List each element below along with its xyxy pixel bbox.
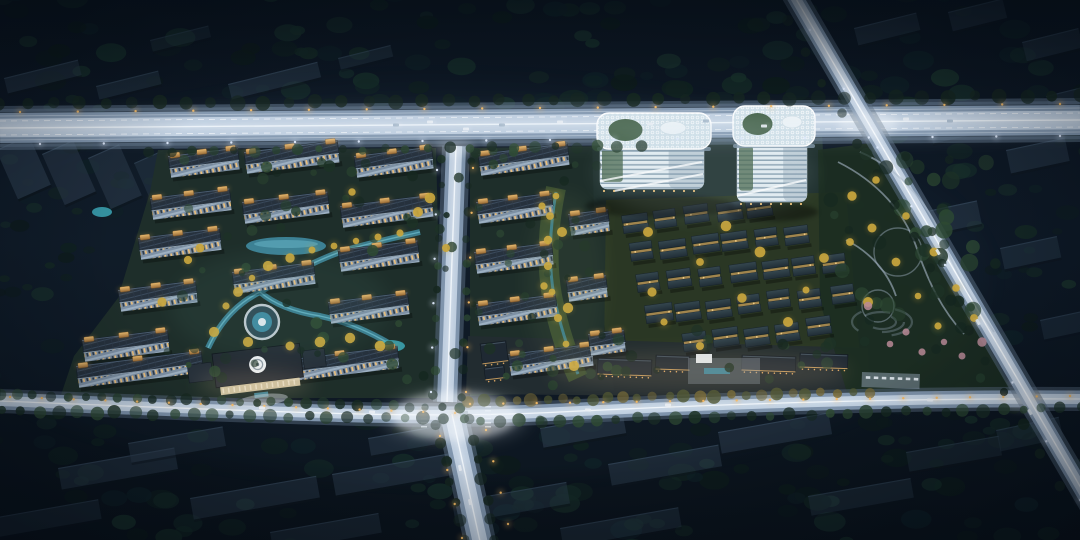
masterplan-aerial-rendering — [0, 0, 1080, 540]
rendering-canvas — [0, 0, 1080, 540]
top-darkening — [0, 0, 1080, 95]
